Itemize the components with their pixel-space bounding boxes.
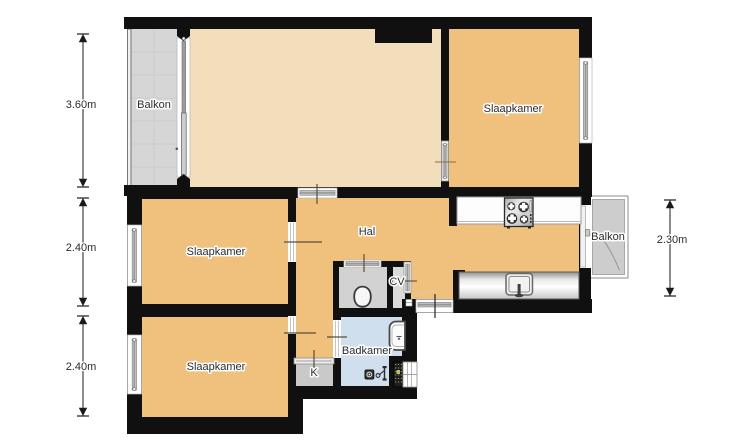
svg-text:2.40m: 2.40m bbox=[66, 242, 97, 254]
svg-text:Badkamer: Badkamer bbox=[342, 345, 392, 357]
svg-text:2.30m: 2.30m bbox=[657, 234, 688, 246]
svg-text:Slaapkamer: Slaapkamer bbox=[187, 361, 246, 373]
svg-text:CV: CV bbox=[389, 276, 405, 288]
svg-text:K: K bbox=[310, 367, 318, 379]
svg-text:2.40m: 2.40m bbox=[66, 361, 97, 373]
svg-text:Slaapkamer: Slaapkamer bbox=[187, 246, 246, 258]
svg-text:Hal: Hal bbox=[359, 226, 376, 238]
svg-text:3.60m: 3.60m bbox=[66, 99, 97, 111]
svg-text:Balkon: Balkon bbox=[591, 231, 625, 243]
svg-text:Balkon: Balkon bbox=[137, 99, 171, 111]
svg-text:Slaapkamer: Slaapkamer bbox=[484, 103, 543, 115]
